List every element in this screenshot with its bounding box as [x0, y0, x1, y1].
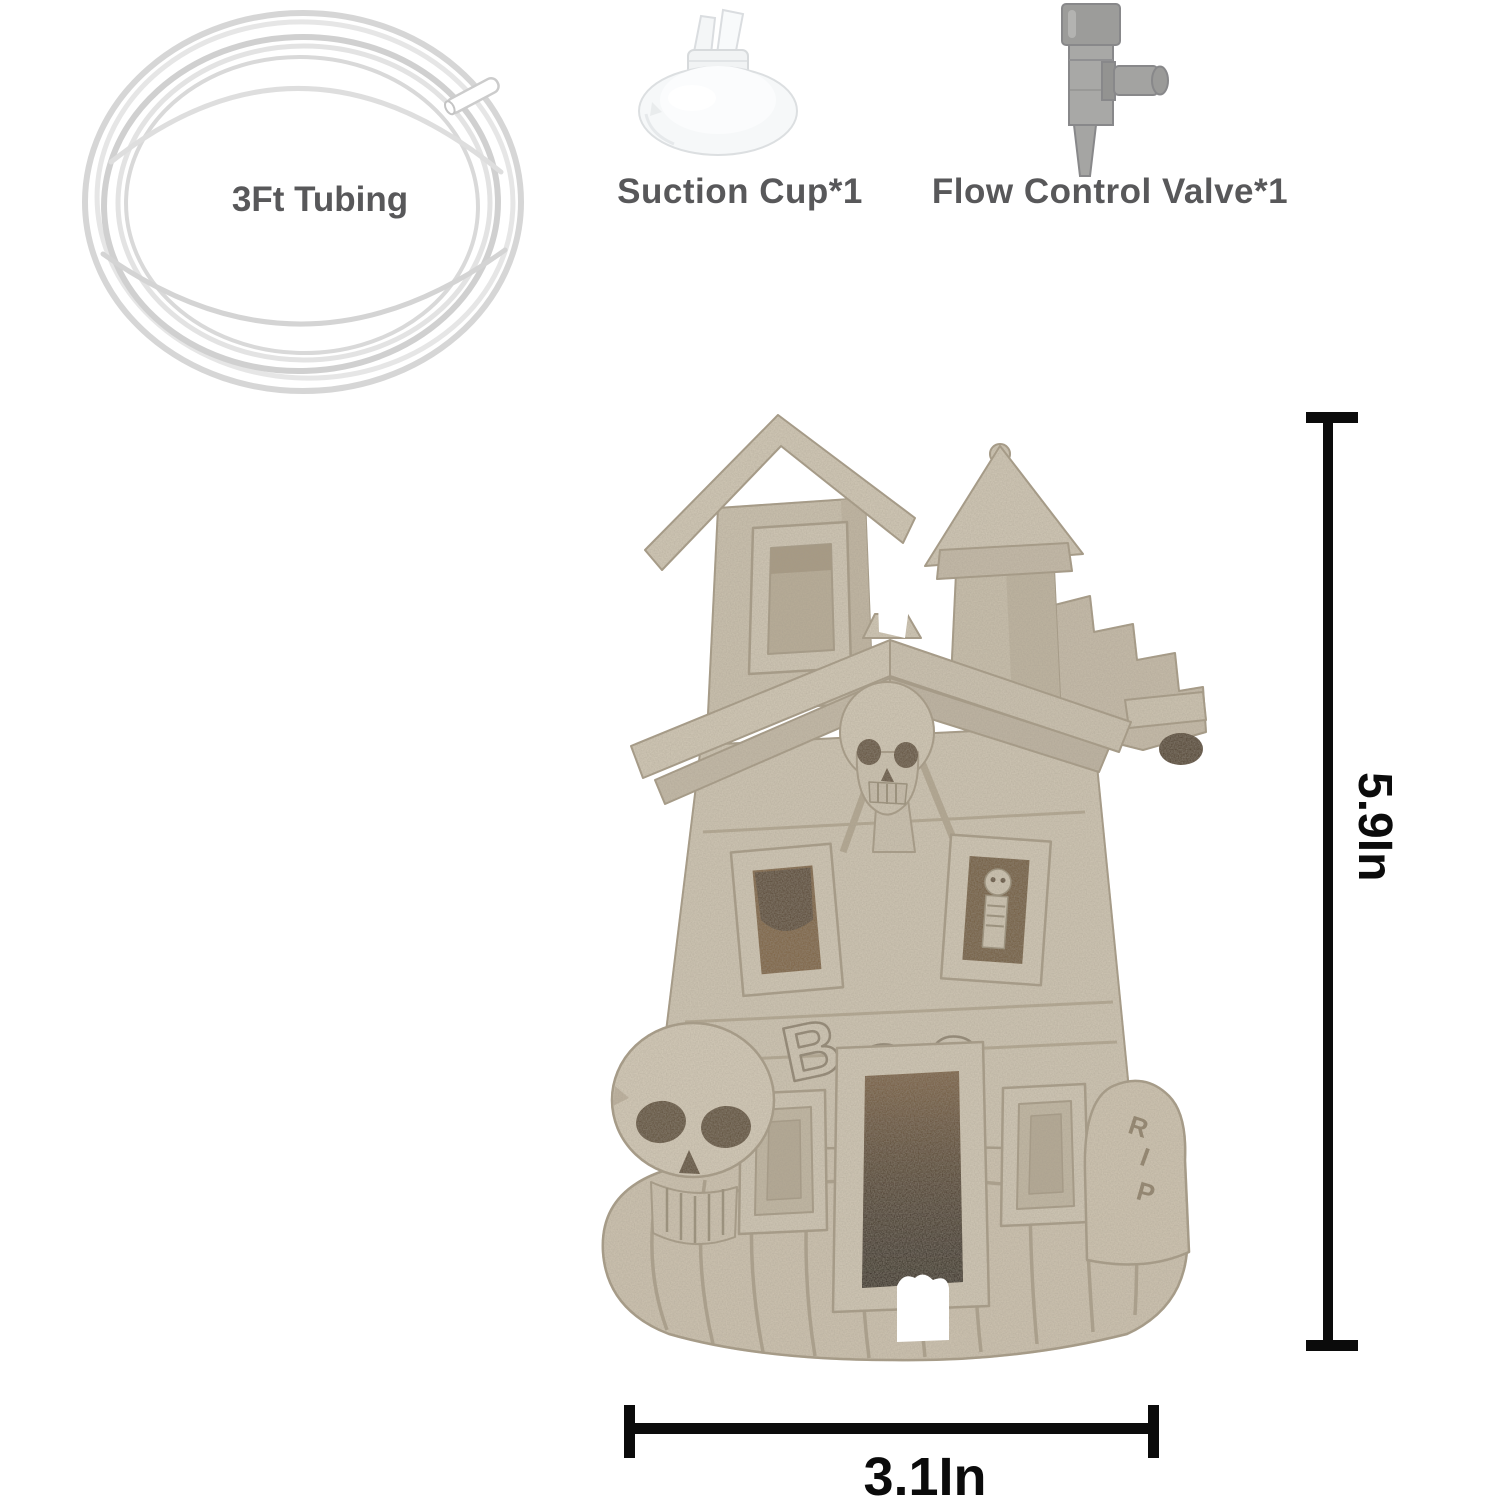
- height-dimension-bottom-cap: [1306, 1340, 1358, 1351]
- width-dimension-label: 3.1In: [775, 1446, 1075, 1497]
- product-image-canvas: 3Ft Tubing Suction Cup*1: [0, 0, 1497, 1497]
- flow-valve-highlight: [1068, 10, 1076, 38]
- suction-cup-dome: [639, 66, 797, 155]
- lower-right-window: [1001, 1084, 1089, 1226]
- width-dimension-right-cap: [1148, 1405, 1159, 1458]
- broken-hole-right: [1159, 733, 1203, 765]
- flow-valve-label: Flow Control Valve*1: [915, 172, 1305, 212]
- height-dimension-label: 5.9In: [1347, 772, 1402, 942]
- upper-left-window: [731, 844, 843, 996]
- height-dimension-line: [1323, 419, 1333, 1344]
- front-door: [833, 1042, 989, 1312]
- tombstone: R I P: [1085, 1081, 1189, 1265]
- suction-cup-illustration: [630, 6, 810, 158]
- tubing-label: 3Ft Tubing: [232, 180, 408, 219]
- flow-valve-body: [1062, 4, 1168, 176]
- width-dimension-line: [631, 1423, 1151, 1434]
- upper-right-window: [941, 835, 1051, 986]
- suction-cup-label: Suction Cup*1: [595, 172, 885, 212]
- flow-valve-illustration: [1048, 2, 1180, 182]
- haunted-house-figurine: B O O: [585, 400, 1210, 1365]
- tubing-illustration: 3Ft Tubing: [73, 4, 535, 402]
